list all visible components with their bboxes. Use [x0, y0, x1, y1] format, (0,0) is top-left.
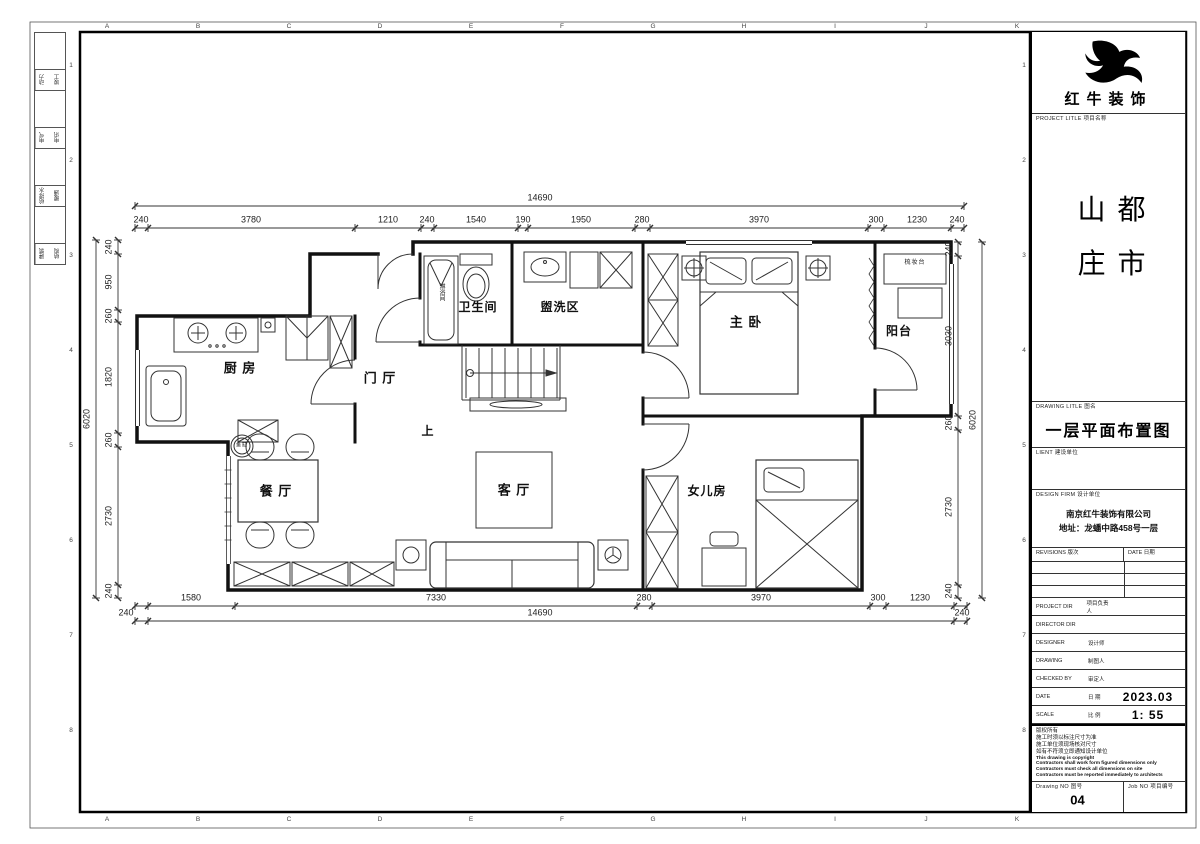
- director-row: DIRECTOR DIR: [1032, 616, 1185, 634]
- master-furniture: [700, 252, 946, 394]
- job-no-cell: Job NO 项目编号: [1124, 782, 1185, 812]
- revisions-header: REVISIONS 版次 DATE 日期: [1032, 548, 1185, 562]
- interior-walls: [355, 242, 875, 590]
- discipline-label: 暖通: [51, 186, 66, 206]
- job-no-label: Job NO 项目编号: [1124, 782, 1185, 791]
- discipline-label: 给排水: [35, 186, 51, 206]
- designer-row: DESIGNER 设计师: [1032, 634, 1185, 652]
- cabinet-symbols: [234, 252, 830, 588]
- discipline-strip: 动力竣工电气电讯给排水暖通建筑结构: [34, 32, 66, 265]
- daughter-furniture: [702, 460, 858, 588]
- discipline-pair-cell: 动力竣工: [35, 70, 65, 91]
- drawing-no-value: 04: [1070, 793, 1084, 808]
- discipline-pair-cell: 给排水暖通: [35, 186, 65, 207]
- discipline-empty-cell: [35, 207, 65, 244]
- discipline-label: 建筑: [35, 244, 51, 264]
- kitchen-fixtures: [146, 316, 328, 426]
- bull-logo: [1072, 40, 1146, 86]
- discipline-label: 电讯: [51, 128, 66, 148]
- revisions-label: REVISIONS 版次: [1032, 548, 1124, 561]
- revisions-date-label: DATE 日期: [1124, 548, 1155, 561]
- design-firm-label: DESIGN FIRM 设计单位: [1032, 490, 1185, 499]
- discipline-label: 动力: [35, 70, 51, 90]
- project-name: 都市山庄: [1069, 194, 1149, 332]
- design-firm-cell: DESIGN FIRM 设计单位 南京红牛装饰有限公司 地址：龙蟠中路458号一…: [1032, 490, 1185, 548]
- design-firm-name: 南京红牛装饰有限公司: [1032, 507, 1185, 521]
- discipline-empty-cell: [35, 149, 65, 186]
- curtain-zigzag: [869, 258, 874, 346]
- discipline-label: 结构: [51, 244, 66, 264]
- doors: [311, 254, 917, 470]
- sheet-frame: [30, 22, 1196, 828]
- drawing-no-cell: Drawing NO 图号 04: [1032, 782, 1124, 812]
- brand-name: 红牛装饰: [1064, 88, 1152, 109]
- date-value: 2023.03: [1111, 690, 1185, 704]
- revision-row: [1032, 574, 1185, 586]
- logo-cell: 红牛装饰: [1032, 32, 1185, 114]
- revision-row: [1032, 586, 1185, 598]
- drawing-label: DRAWING LITLE 图名: [1032, 402, 1185, 411]
- design-firm-address: 地址：龙蟠中路458号一层: [1032, 521, 1185, 535]
- checked-by-row: CHECKED BY 审定人: [1032, 670, 1185, 688]
- title-block: 红牛装饰 PROJECT LITLE 项目名称 都市山庄 DRAWING LIT…: [1030, 32, 1186, 812]
- drawing-number-row: Drawing NO 图号 04 Job NO 项目编号: [1032, 782, 1185, 812]
- floor-plan-svg: [0, 0, 1200, 844]
- drawing-sheet: AABBCCDDEEFFGGHHIIJJKK1122334455667788 厨…: [0, 0, 1200, 844]
- windows: [134, 239, 955, 565]
- living-furniture: [231, 398, 628, 588]
- discipline-empty-cell: [35, 33, 65, 70]
- stairs: [462, 345, 560, 400]
- drawing-no-label: Drawing NO 图号: [1032, 782, 1123, 791]
- drawing-title-cell: DRAWING LITLE 图名 一层平面布置图: [1032, 402, 1185, 448]
- discipline-pair-cell: 电气电讯: [35, 128, 65, 149]
- client-cell: LIENT 建设单位: [1032, 448, 1185, 490]
- revision-row: [1032, 562, 1185, 574]
- discipline-pair-cell: 建筑结构: [35, 244, 65, 265]
- discipline-empty-cell: [35, 91, 65, 128]
- project-dir-row: PROJECT DIR 项目负责人: [1032, 598, 1185, 616]
- drawing-person-row: DRAWING 制图人: [1032, 652, 1185, 670]
- project-name-cell: PROJECT LITLE 项目名称 都市山庄: [1032, 114, 1185, 402]
- date-row: DATE 日 期 2023.03: [1032, 688, 1185, 706]
- discipline-label: 竣工: [51, 70, 66, 90]
- border-frame: [80, 32, 1186, 812]
- client-label: LIENT 建设单位: [1032, 448, 1185, 457]
- drawing-title: 一层平面布置图: [1045, 417, 1171, 441]
- project-label: PROJECT LITLE 项目名称: [1032, 114, 1185, 123]
- copyright-notes: 版权所有 施工时须以标注尺寸为准 施工单位须现场核对尺寸 如有不符须立即通知设计…: [1032, 724, 1185, 782]
- discipline-label: 电气: [35, 128, 51, 148]
- scale-value: 1: 55: [1111, 708, 1185, 722]
- scale-row: SCALE 比 例 1: 55: [1032, 706, 1185, 724]
